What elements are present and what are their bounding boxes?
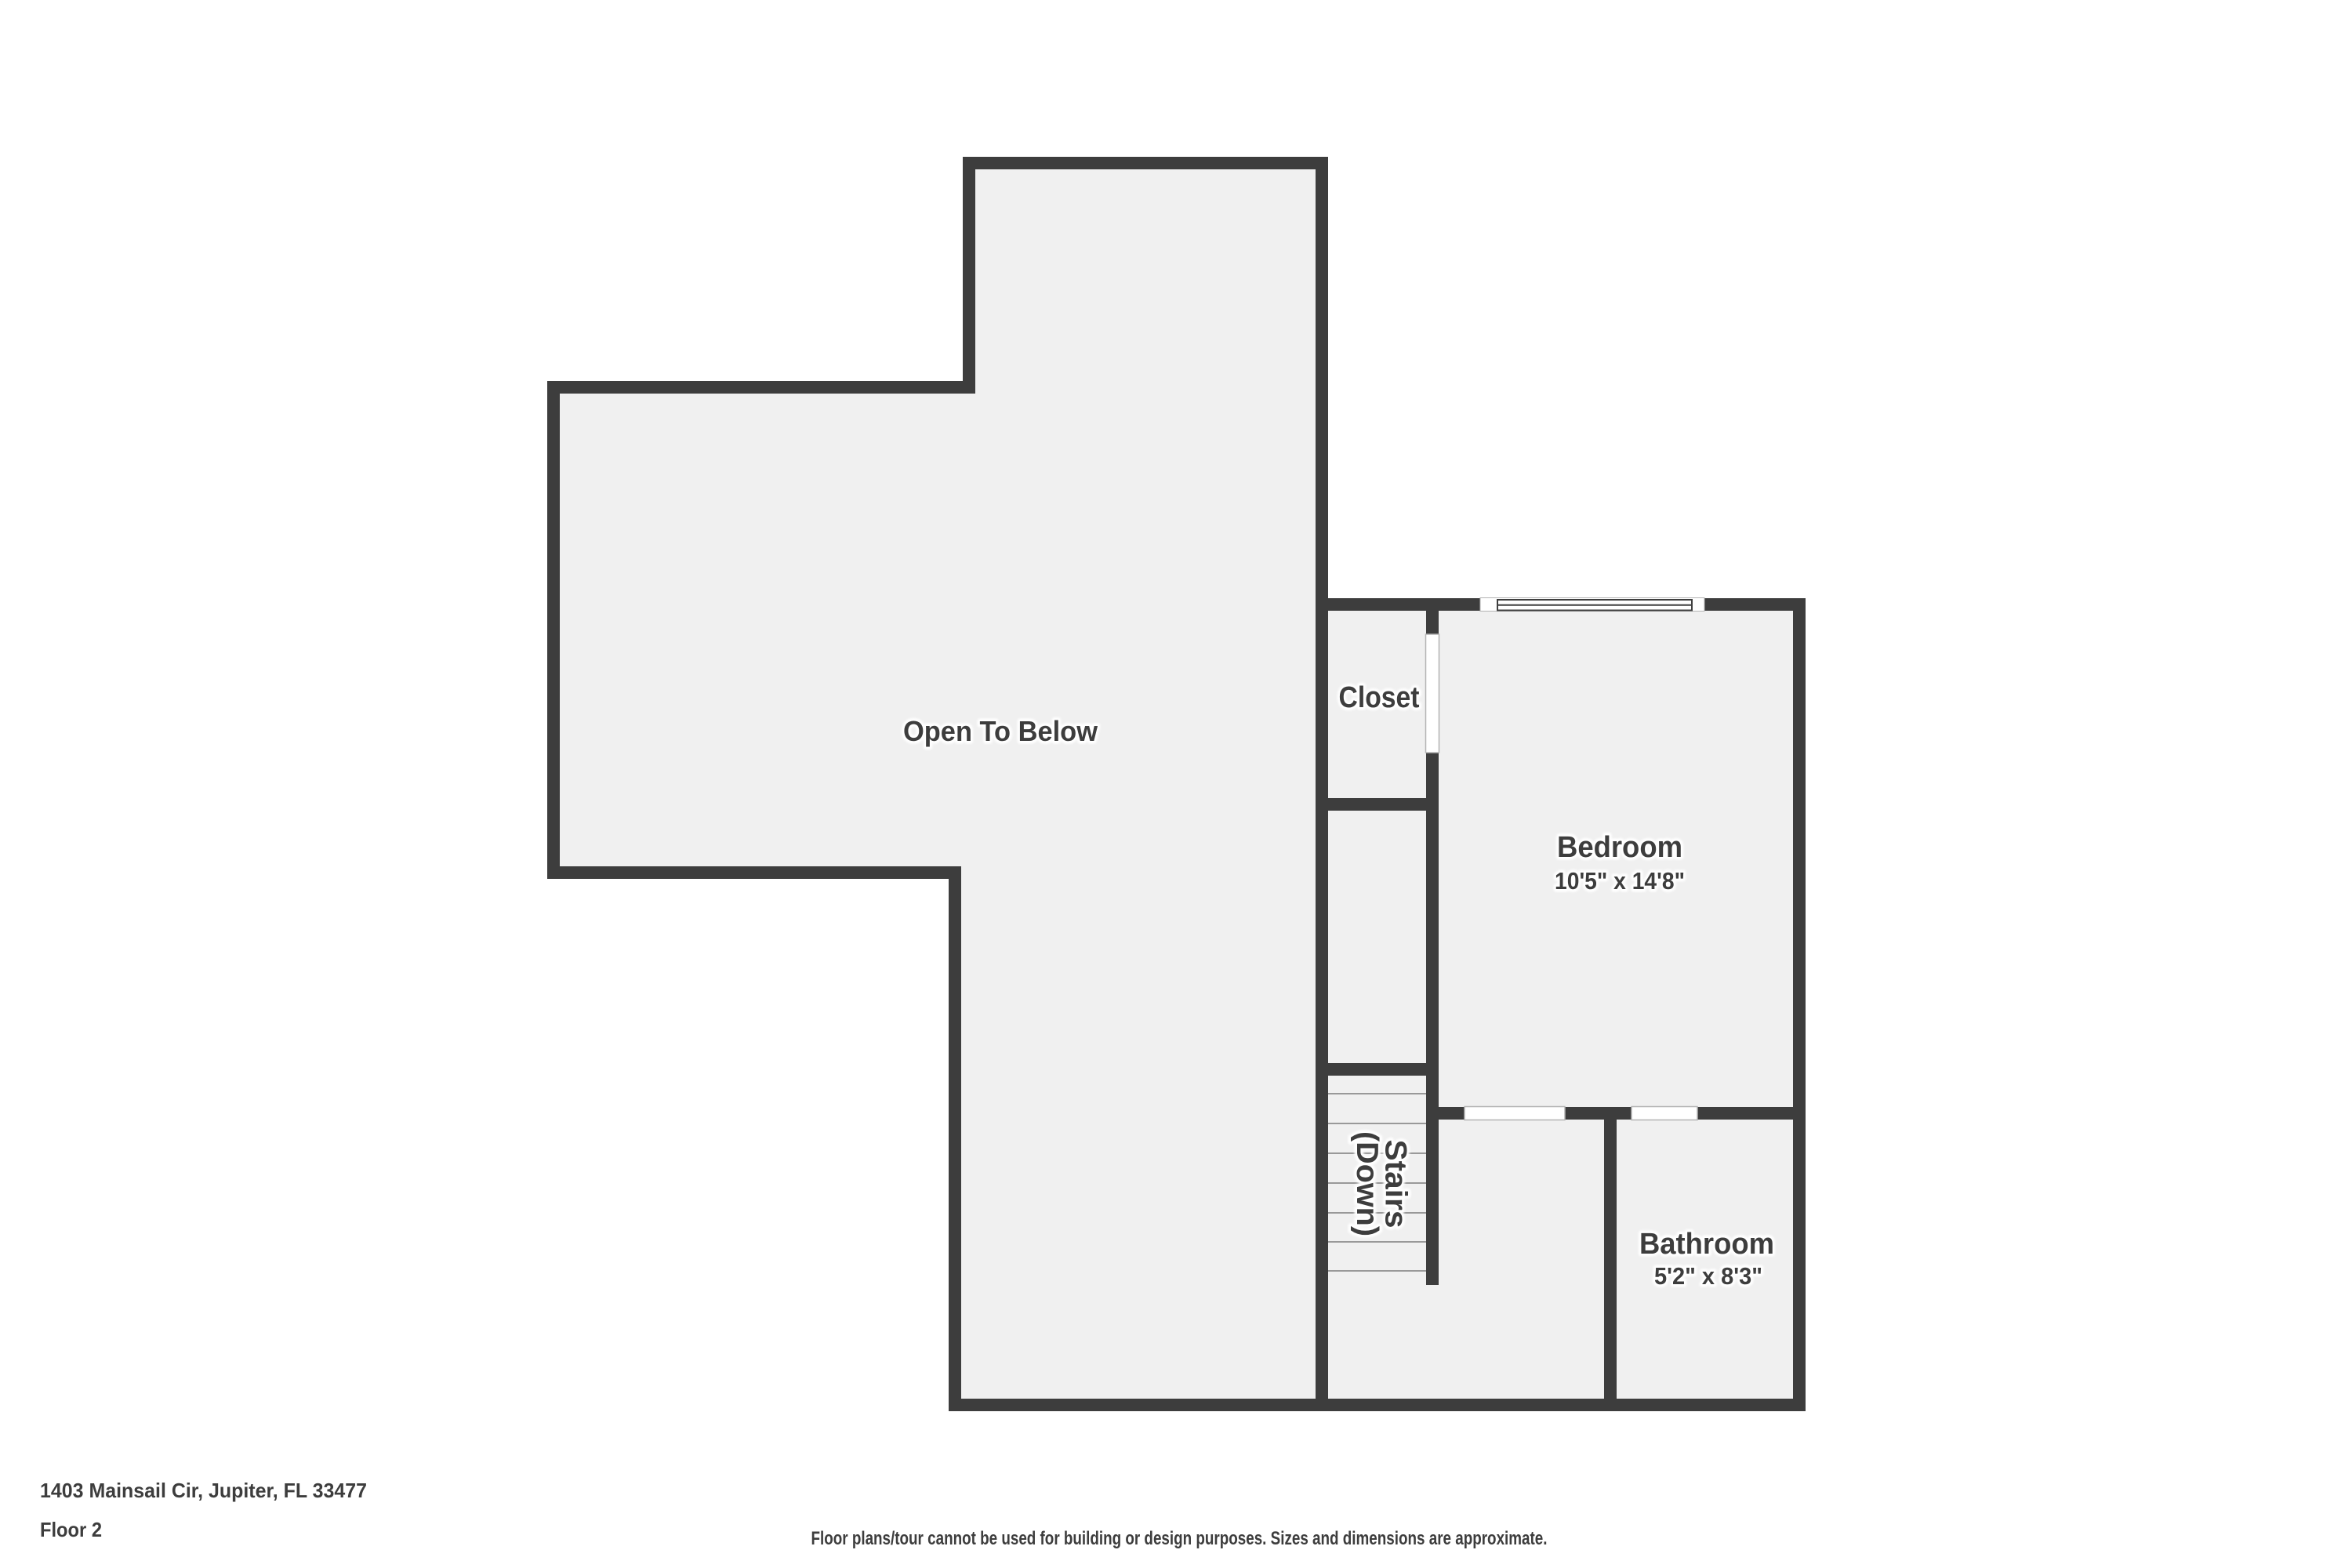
svg-text:Floor 2: Floor 2 [40, 1518, 102, 1541]
svg-text:1403 Mainsail Cir, Jupiter, FL: 1403 Mainsail Cir, Jupiter, FL 33477 [40, 1479, 367, 1502]
svg-text:10'5" x 14'8": 10'5" x 14'8" [1555, 867, 1685, 895]
svg-text:Closet: Closet [1339, 681, 1420, 714]
svg-text:Bedroom: Bedroom [1557, 831, 1682, 864]
svg-text:Bathroom: Bathroom [1639, 1228, 1774, 1261]
svg-text:(Down): (Down) [1350, 1131, 1384, 1236]
svg-text:Floor plans/tour cannot be use: Floor plans/tour cannot be used for buil… [811, 1528, 1548, 1549]
svg-text:5'2" x 8'3": 5'2" x 8'3" [1654, 1262, 1762, 1290]
svg-text:Open To Below: Open To Below [903, 715, 1098, 747]
